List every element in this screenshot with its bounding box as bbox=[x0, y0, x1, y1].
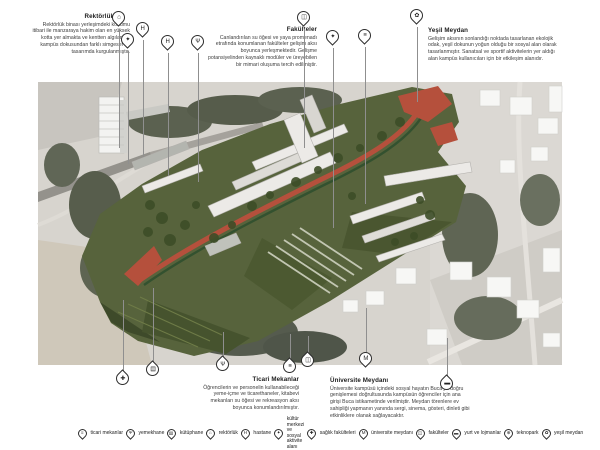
annotation-title: Fakülteler bbox=[205, 26, 317, 33]
masterplan-poster: Rektörlük Rektörlük binası yerleşimdeki … bbox=[0, 0, 600, 450]
legend-item-rektorluk: ⌂ rektörlük bbox=[206, 429, 238, 438]
yemekhane-icon: Ψ bbox=[124, 427, 137, 440]
yemekhane-icon: Ψ bbox=[194, 39, 199, 45]
legend-label: yurt ve lojmanlar bbox=[464, 431, 501, 437]
saglik-fakulteleri-icon: ✚ bbox=[119, 376, 124, 382]
legend-label: kütüphane bbox=[180, 431, 203, 437]
yemekhane-icon: Ψ bbox=[219, 362, 224, 368]
annotation-body: Gelişim aksının sonlandığı noktada tasar… bbox=[428, 36, 564, 63]
pin-leader-line bbox=[198, 53, 199, 182]
pin-leader-line bbox=[123, 300, 124, 372]
annotation-title: Yeşil Meydan bbox=[428, 27, 564, 34]
pin-leader-line bbox=[143, 40, 144, 157]
pin-leader-line bbox=[168, 53, 169, 176]
kultur-merkezi-icon: ✦ bbox=[272, 427, 285, 440]
pin-leader-line bbox=[153, 288, 154, 363]
universite-meydani-icon: M bbox=[363, 356, 368, 362]
legend-label: rektörlük bbox=[219, 431, 238, 437]
yurt-ve-lojmanlar-icon: ▬ bbox=[450, 427, 463, 440]
kutuphane-icon: ▤ bbox=[166, 427, 179, 440]
legend-item-saglik-fakulteleri: ✚ sağlık fakülteleri bbox=[307, 429, 355, 438]
pin-leader-line bbox=[333, 48, 334, 228]
annotation-body: Canlandırılan su öğesi ve yaya promenadı… bbox=[205, 35, 317, 69]
teknopark-icon: ⊕ bbox=[502, 427, 515, 440]
pin-leader-line bbox=[417, 27, 418, 102]
legend-label: üniversite meydanı bbox=[371, 431, 413, 437]
legend-item-fakulteler: ◫ fakülteler bbox=[416, 429, 449, 438]
annotation-fakulteler: Fakülteler Canlandırılan su öğesi ve yay… bbox=[205, 26, 317, 68]
legend-label: teknopark bbox=[517, 431, 539, 437]
legend-label: fakülteler bbox=[429, 431, 449, 437]
saglik-fakulteleri-icon: ✚ bbox=[305, 427, 318, 440]
ticari-mekanlar-icon: ≡ bbox=[287, 364, 291, 370]
ticari-mekanlar-icon: ≡ bbox=[76, 427, 89, 440]
pin-leader-line bbox=[119, 29, 120, 148]
yesil-meydan-icon: ✿ bbox=[413, 13, 418, 19]
legend-item-teknopark: ⊕ teknopark bbox=[504, 429, 538, 438]
annotation-yesil-meydan: Yeşil Meydan Gelişim aksının sonlandığı … bbox=[428, 27, 564, 63]
legend-item-universite-meydani: M üniversite meydanı bbox=[359, 429, 413, 438]
legend-item-yesil-meydan: ✿ yeşil meydan bbox=[542, 429, 584, 438]
legend-item-kultur-merkezi: ✦ kültür merkezi ve sosyal aktivite alan… bbox=[274, 417, 304, 450]
annotation-body: Rektörlük binası yerleşimdeki konumu iti… bbox=[32, 22, 130, 56]
hastane-icon: H bbox=[239, 427, 252, 440]
kutuphane-icon: ▤ bbox=[149, 367, 155, 373]
legend-item-ticari-mekanlar: ≡ ticari mekanlar bbox=[78, 429, 123, 438]
pin-leader-line bbox=[128, 51, 129, 164]
pin-leader-line bbox=[223, 332, 224, 358]
fakulteler-icon: ◫ bbox=[414, 427, 427, 440]
annotation-title: Ticari Mekanlar bbox=[193, 376, 299, 383]
legend-label: kültür merkezi ve sosyal aktivite alanı bbox=[287, 417, 305, 450]
rektorluk-icon: ⌂ bbox=[204, 427, 217, 440]
fakulteler-icon: ◫ bbox=[304, 358, 310, 364]
legend-item-yurt-ve-lojmanlar: ▬ yurt ve lojmanlar bbox=[452, 429, 501, 438]
kultur-merkezi-icon: ✦ bbox=[124, 37, 129, 43]
legend-label: hastane bbox=[253, 431, 271, 437]
annotation-body: Öğrencilerin ve personelin kullanabilece… bbox=[193, 385, 299, 412]
legend-label: ticari mekanlar bbox=[91, 431, 124, 437]
yurt-ve-lojmanlar-icon: ▬ bbox=[443, 381, 449, 387]
legend-item-hastane: H hastane bbox=[241, 429, 271, 438]
kultur-merkezi-icon: ✦ bbox=[329, 34, 334, 40]
ticari-mekanlar-icon: ≡ bbox=[362, 33, 366, 39]
legend-label: yeşil meydan bbox=[554, 431, 583, 437]
yesil-meydan-icon: ✿ bbox=[540, 427, 553, 440]
legend-label: yemekhane bbox=[139, 431, 165, 437]
pin-leader-line bbox=[290, 334, 291, 360]
hastane-icon: H bbox=[165, 39, 169, 45]
legend: ≡ ticari mekanlar Ψ yemekhane ▤ kütüphan… bbox=[78, 417, 566, 450]
pin-leader-line bbox=[304, 29, 305, 148]
legend-item-kutuphane: ▤ kütüphane bbox=[167, 429, 203, 438]
legend-label: sağlık fakülteleri bbox=[320, 431, 356, 437]
legend-item-yemekhane: Ψ yemekhane bbox=[126, 429, 164, 438]
annotation-ticari-mekanlar: Ticari Mekanlar Öğrencilerin ve personel… bbox=[193, 376, 299, 412]
pin-leader-line bbox=[447, 338, 448, 377]
annotation-body: Üniversite kampüsü içindeki sosyal hayat… bbox=[330, 386, 472, 420]
rektorluk-icon: ⌂ bbox=[116, 15, 120, 21]
pin-leader-line bbox=[365, 47, 366, 204]
fakulteler-icon: ◫ bbox=[300, 15, 306, 21]
hastane-icon: H bbox=[140, 26, 144, 32]
universite-meydani-icon: M bbox=[357, 427, 370, 440]
pin-leader-line bbox=[366, 308, 367, 352]
